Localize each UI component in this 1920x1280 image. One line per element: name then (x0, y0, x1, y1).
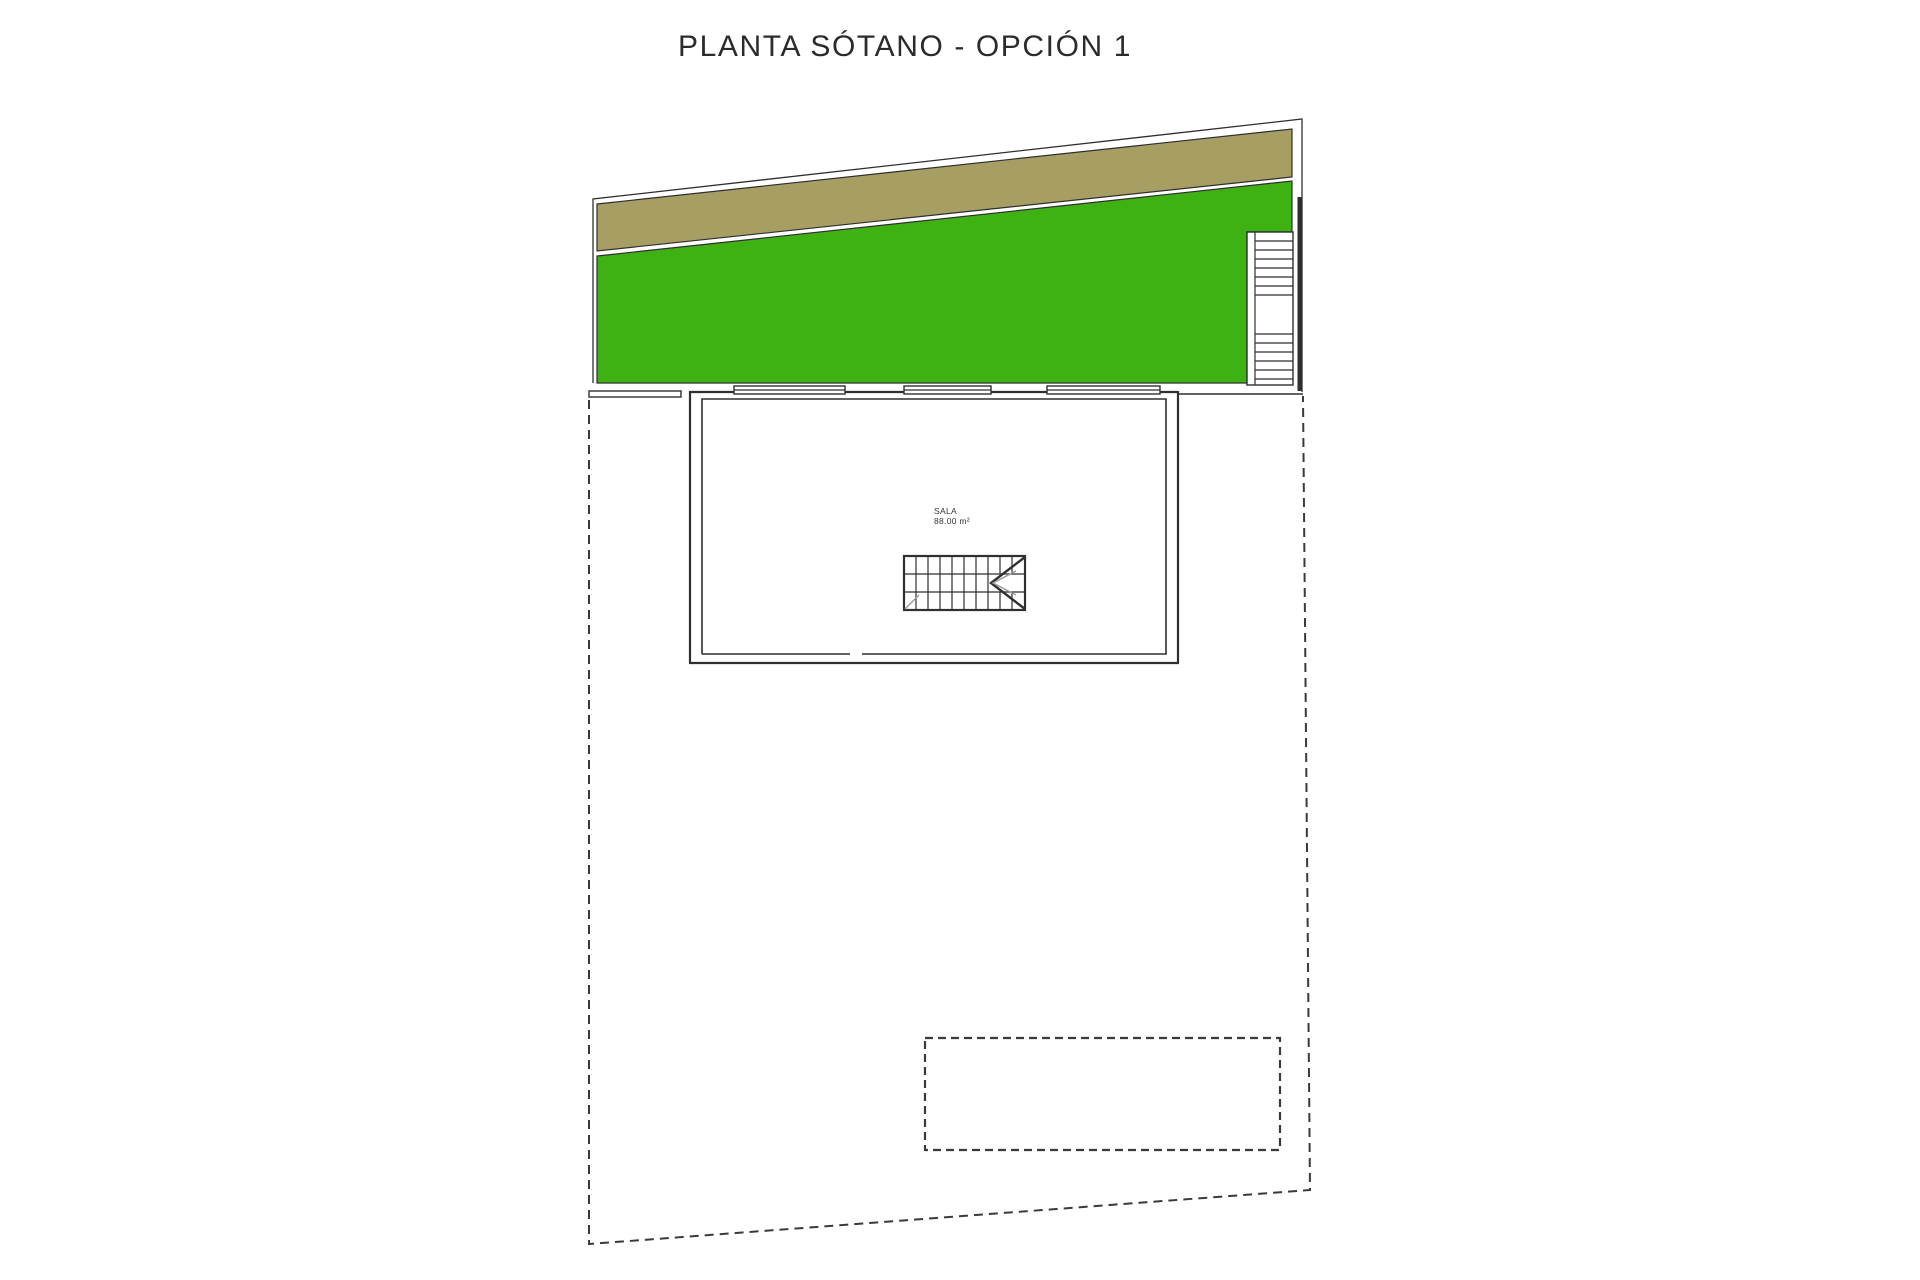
room-inner-wall (702, 399, 1166, 654)
stair-start-mark (905, 595, 919, 609)
stairwell (1247, 232, 1293, 385)
interior-stair-treads (904, 556, 1025, 610)
interior-stair-symbol (904, 556, 1025, 610)
window-2 (904, 386, 991, 394)
pool-outline-dashed (925, 1038, 1280, 1150)
left-wall-segment (589, 391, 681, 397)
floor-plan: SALA 88.00 m² (0, 0, 1920, 1280)
room-name-label: SALA (934, 506, 957, 516)
stair-direction-arrow (991, 557, 1025, 609)
window-1 (734, 386, 845, 394)
room-windows (734, 386, 1160, 394)
basement-room: SALA 88.00 m² (689, 386, 1179, 663)
room-outer-wall (689, 391, 1179, 663)
room-area-label: 88.00 m² (934, 516, 970, 526)
window-3 (1047, 386, 1160, 394)
upper-terrace (593, 119, 1302, 392)
